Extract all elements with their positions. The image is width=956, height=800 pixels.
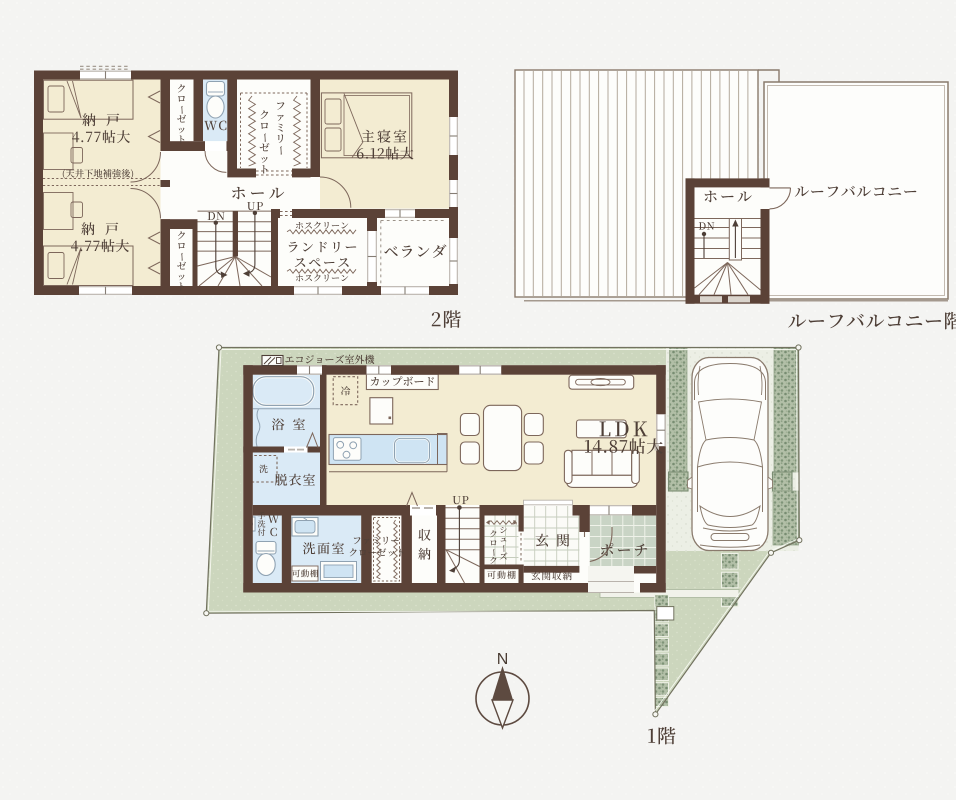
svg-text:N: N (497, 651, 509, 668)
